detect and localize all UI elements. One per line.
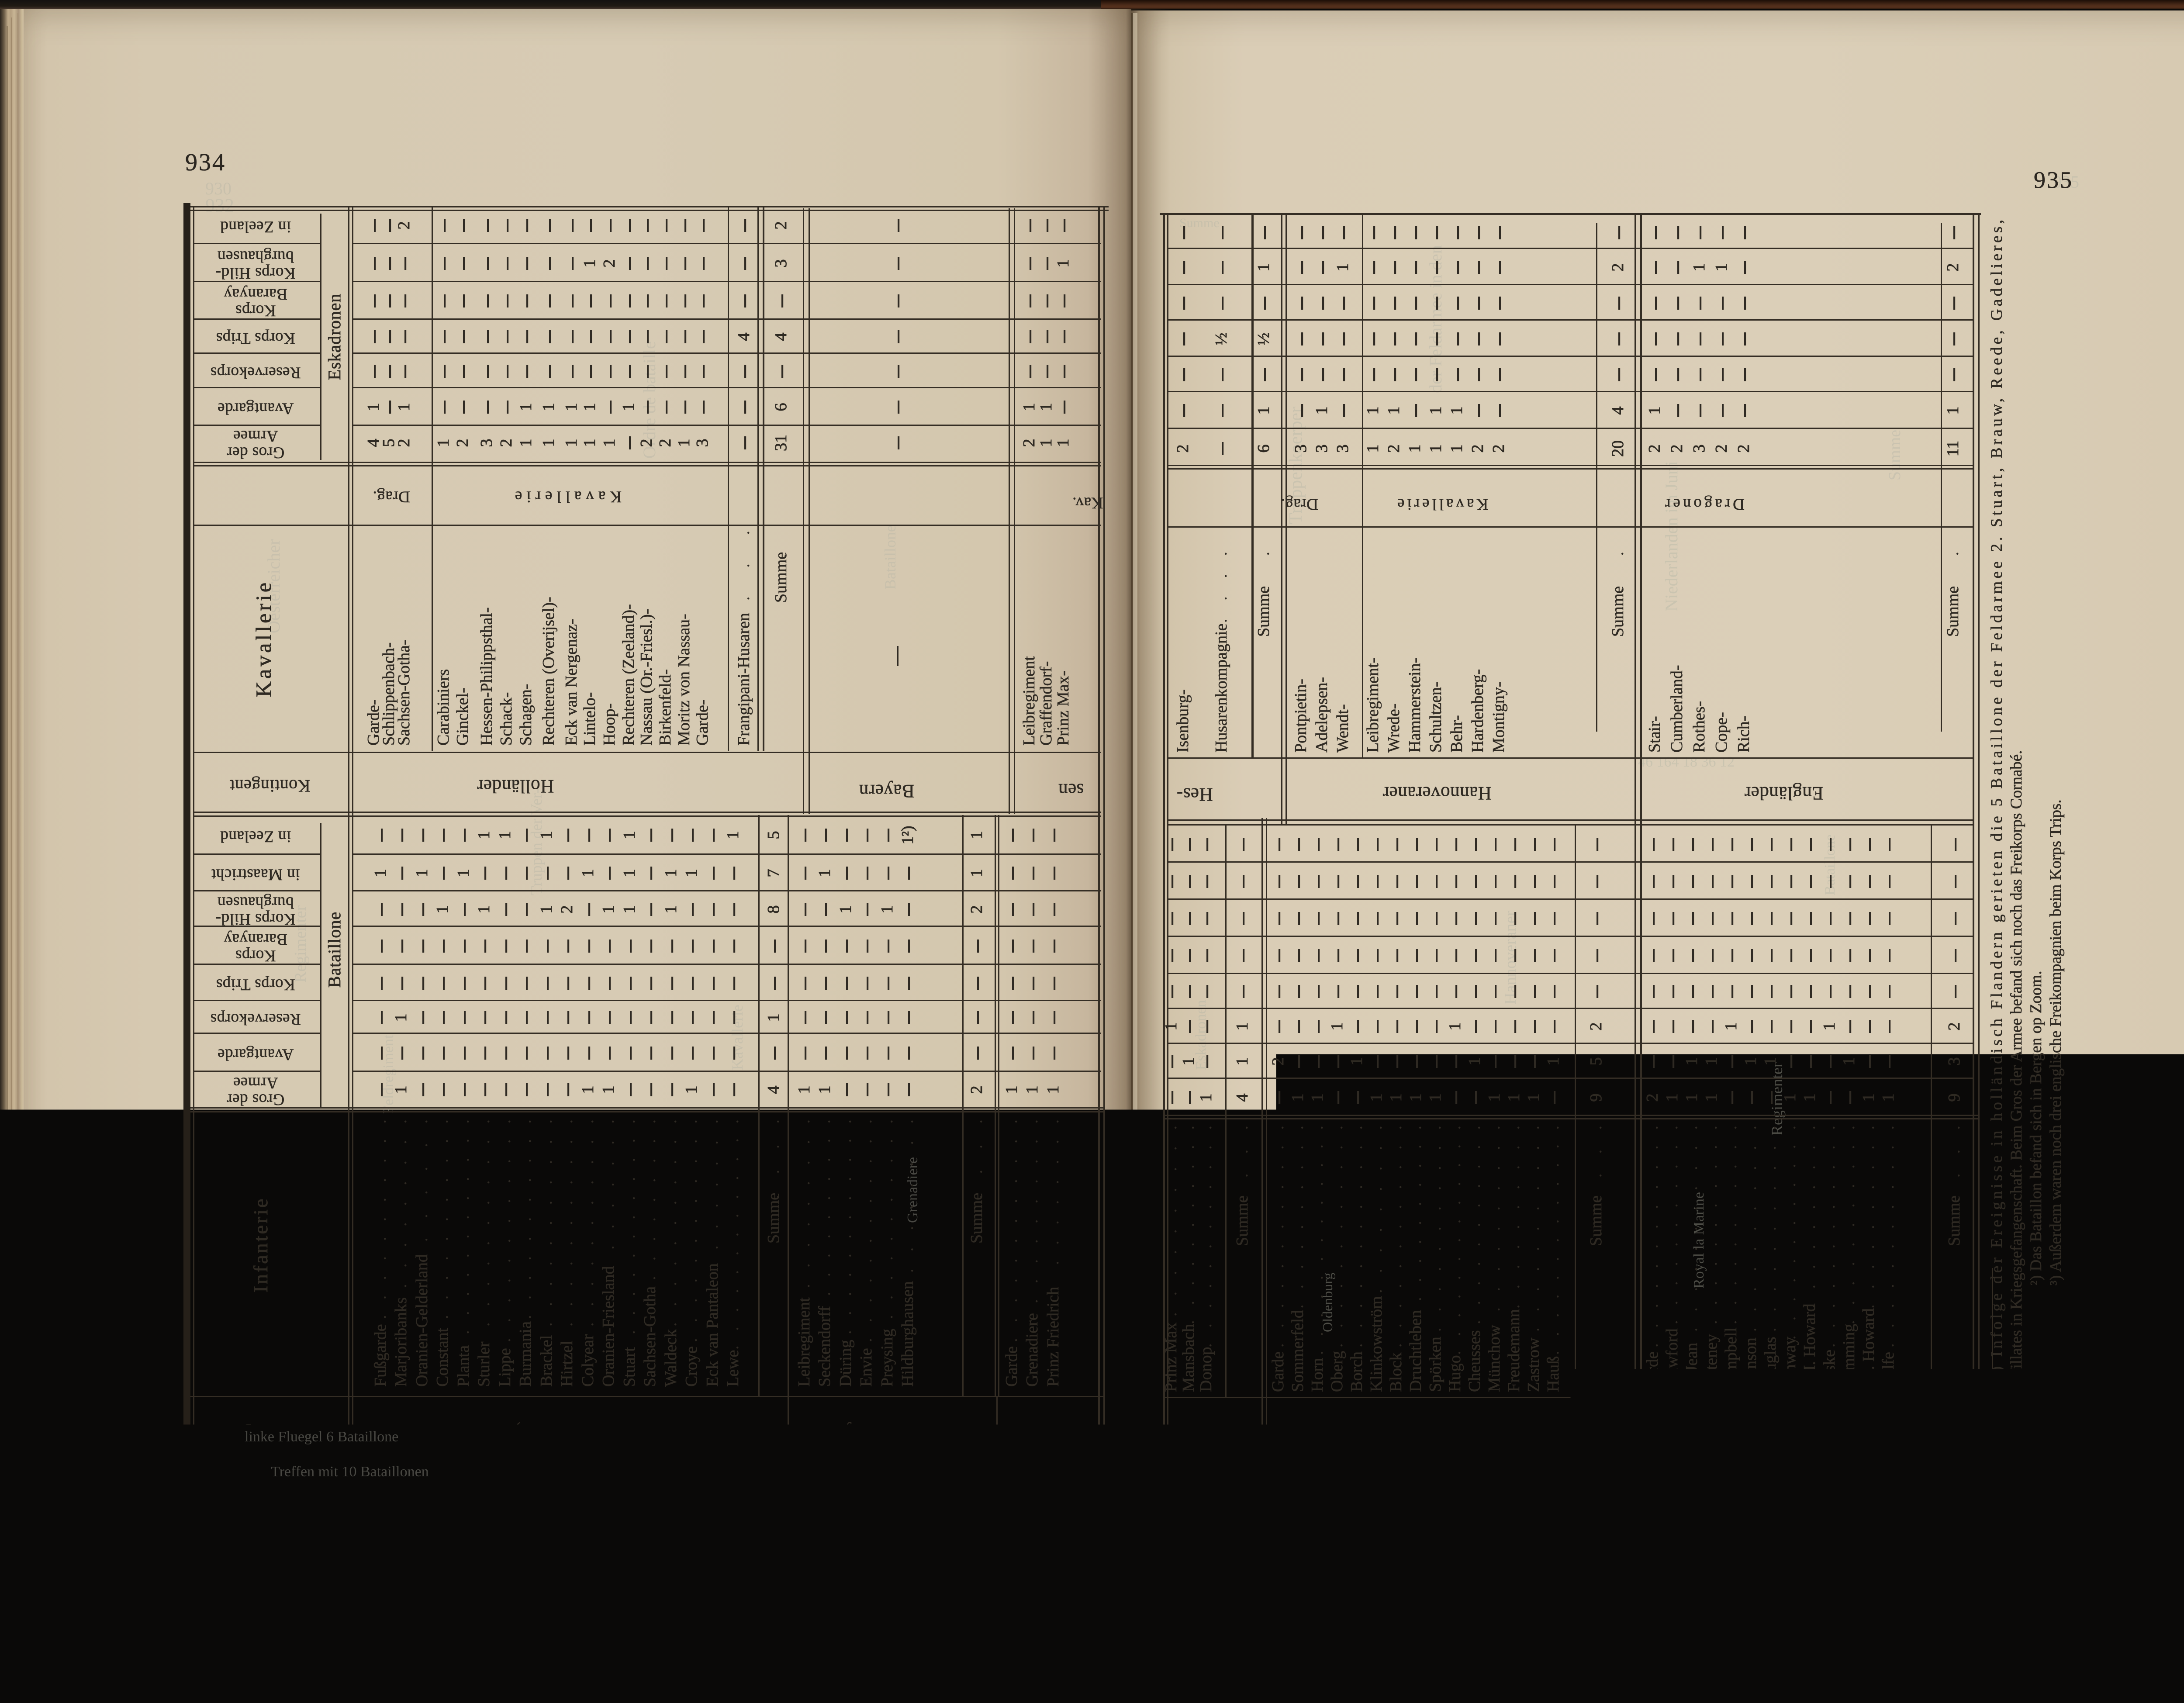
svg-text:Summe: Summe (1944, 586, 1962, 637)
svg-text:1: 1 (968, 869, 986, 877)
svg-text:Dragoner: Dragoner (1662, 495, 1745, 513)
svg-text:Grenadiere: Grenadiere (905, 1157, 921, 1223)
svg-text:. . . . . . . . . . .: . . . . . . . . . . . (475, 1119, 493, 1326)
svg-text:. . . . . . . . . . . .: . . . . . . . . . . . . (620, 1119, 639, 1334)
svg-text:Schack-: Schack- (497, 692, 515, 746)
svg-text:6: 6 (772, 403, 790, 411)
svg-text:Hes-: Hes- (1176, 784, 1213, 805)
svg-text:2: 2 (558, 905, 576, 914)
svg-text:Carabiniers: Carabiniers (434, 669, 453, 746)
svg-text:. . . . . . . . . . . .: . . . . . . . . . . . . (1002, 1119, 1021, 1342)
svg-text:. . . . . . . . . . .: . . . . . . . . . . . (1179, 1126, 1198, 1324)
svg-text:1: 1 (496, 831, 514, 839)
svg-text:²) Das Bataillon befand sich i: ²) Das Bataillon befand sich in Bergen o… (2027, 971, 2045, 1285)
svg-text:Envie: Envie (857, 1348, 875, 1387)
svg-text:. . . . . . . . . . . . .: . . . . . . . . . . . . . (1544, 1126, 1562, 1355)
svg-text:9: 9 (1587, 1094, 1605, 1102)
svg-text:Holländer: Holländer (477, 776, 554, 796)
svg-text:Crawford: Crawford (1663, 1328, 1681, 1392)
svg-text:2: 2 (1712, 445, 1731, 453)
svg-text:. . . .: . . . . (1233, 1126, 1251, 1202)
svg-text:. . . . . . .: . . . . . . . (599, 1119, 618, 1250)
svg-text:Truppen der Ver-: Truppen der Ver- (528, 788, 545, 895)
svg-text:Garde: Garde (1002, 1346, 1021, 1387)
svg-text:1: 1 (1334, 263, 1352, 272)
svg-text:1: 1 (1308, 1094, 1327, 1102)
svg-text:Fußgarde: Fußgarde (371, 1324, 390, 1387)
svg-text:1: 1 (1387, 1094, 1405, 1102)
svg-text:2: 2 (395, 439, 413, 447)
svg-text:1: 1 (1722, 1022, 1740, 1031)
svg-text:. . . . . .: . . . . . . (413, 1119, 431, 1242)
svg-text:1: 1 (764, 1014, 783, 1022)
svg-text:1: 1 (1054, 439, 1072, 447)
svg-text:Wrede-: Wrede- (1385, 704, 1403, 753)
svg-text:. . . . . . . . .: . . . . . . . . . (1367, 1126, 1386, 1293)
svg-text:1: 1 (1820, 1022, 1838, 1031)
svg-text:2: 2 (453, 439, 472, 447)
svg-text:Korps Trips: Korps Trips (216, 976, 295, 994)
svg-text:Grenadiere: Grenadiere (1023, 1313, 1041, 1387)
svg-text:1: 1 (1254, 407, 1273, 415)
svg-text:9: 9 (1945, 1094, 1963, 1102)
svg-text:. . . . . . . . . . . .: . . . . . . . . . . . . (1820, 1126, 1838, 1347)
svg-text:935: 935 (2034, 167, 2073, 193)
svg-text:1: 1 (1367, 1094, 1386, 1102)
svg-text:Leibregiment: Leibregiment (1020, 656, 1038, 746)
svg-text:. . . . . . . . . .: . . . . . . . . . . (1505, 1126, 1523, 1309)
svg-text:. . . . . . . . . . .: . . . . . . . . . . . (1663, 1126, 1681, 1324)
svg-text:. . . . . . . . . . .: . . . . . . . . . . . (1426, 1126, 1444, 1332)
svg-text:2: 2 (1945, 1022, 1963, 1031)
svg-text:1: 1 (1663, 1094, 1681, 1102)
svg-text:1: 1 (581, 403, 599, 411)
svg-text:1: 1 (619, 403, 638, 411)
svg-text:Stuart: Stuart (620, 1347, 639, 1387)
svg-text:. . . . . . . . . . . .: . . . . . . . . . . . . (1328, 1126, 1346, 1347)
svg-text:Lippe: Lippe (496, 1348, 514, 1387)
svg-text:Bataillone: Bataillone (881, 525, 899, 590)
svg-text:3: 3 (1690, 445, 1708, 453)
svg-text:2: 2 (1269, 1057, 1287, 1066)
svg-text:1: 1 (1944, 407, 1962, 415)
svg-text:Garde: Garde (1269, 1351, 1287, 1392)
svg-text:Sturler: Sturler (475, 1341, 493, 1387)
svg-text:1: 1 (1348, 1057, 1366, 1066)
svg-text:Eck van Nergenaz-: Eck van Nergenaz- (562, 619, 581, 746)
svg-text:. . . . . . . . . . .: . . . . . . . . . . . (1742, 1126, 1760, 1332)
svg-text:1: 1 (1037, 439, 1055, 447)
svg-text:1: 1 (413, 869, 431, 877)
svg-text:1: 1 (968, 831, 986, 839)
svg-text:1: 1 (1742, 1057, 1760, 1066)
svg-text:Drag.: Drag. (373, 488, 410, 506)
svg-text:Korps: Korps (235, 302, 276, 320)
svg-text:2: 2 (968, 905, 986, 914)
svg-text:Montigny-: Montigny- (1489, 681, 1508, 753)
svg-text:1: 1 (1406, 445, 1424, 453)
svg-text:2: 2 (1020, 439, 1038, 447)
svg-text:4: 4 (764, 1086, 783, 1094)
svg-text:Lewe: Lewe (724, 1350, 742, 1387)
svg-text:de Jean: de Jean (1683, 1343, 1701, 1392)
svg-text:Cheusses: Cheusses (1465, 1330, 1484, 1392)
svg-text:Kavallerie: Kavallerie (1395, 495, 1488, 513)
svg-text:1: 1 (1044, 1086, 1062, 1094)
svg-text:Husarenkompagnie: Husarenkompagnie (1212, 624, 1230, 753)
svg-text:1: 1 (1859, 1094, 1878, 1102)
svg-text:Drag.: Drag. (1281, 495, 1318, 513)
svg-text:. . . . . . . . . . . .: . . . . . . . . . . . . (1348, 1126, 1366, 1347)
svg-text:1: 1 (1702, 1057, 1721, 1066)
svg-text:Garde-: Garde- (693, 700, 712, 746)
svg-text:1: 1 (1683, 1094, 1701, 1102)
svg-text:Rechteren (Overijsel)-: Rechteren (Overijsel)- (539, 597, 558, 746)
svg-text:Engländer ³): Engländer ³) (1745, 1425, 1842, 1446)
svg-text:Rich-: Rich- (1735, 716, 1753, 753)
svg-text:Kavallerie: Kavallerie (251, 580, 276, 697)
svg-text:2: 2 (1645, 445, 1664, 453)
svg-text:Niederlanden im Juni: Niederlanden im Juni (1662, 461, 1681, 611)
svg-text:Hannoveraner: Hannoveraner (1382, 783, 1492, 803)
svg-text:1: 1 (662, 905, 680, 914)
svg-text:Bataillone: Bataillone (325, 912, 344, 988)
svg-text:2: 2 (1643, 1094, 1662, 1102)
svg-text:2: 2 (1469, 445, 1487, 453)
svg-text:. . . . . . . . . . .: . . . . . . . . . . . (537, 1119, 556, 1326)
svg-text:Korps Hild-: Korps Hild- (215, 264, 295, 282)
svg-text:Sachsen-Gotha: Sachsen-Gotha (641, 1286, 659, 1387)
svg-text:Freudemann: Freudemann (1505, 1309, 1523, 1392)
svg-text:4: 4 (772, 333, 790, 341)
svg-text:. . . . . . . . . . .: . . . . . . . . . . . (433, 1119, 452, 1319)
svg-text:. . . .: . . . . (968, 1119, 986, 1199)
svg-text:. . . . . . . . . .: . . . . . . . . . . (1800, 1126, 1819, 1309)
svg-text:1: 1 (1702, 1094, 1721, 1102)
svg-text:. . . . . . . . .: . . . . . . . . . (392, 1119, 410, 1288)
svg-text:2: 2 (1668, 445, 1686, 453)
svg-text:1: 1 (537, 831, 556, 839)
svg-text:1: 1 (392, 1086, 410, 1094)
svg-text:1: 1 (1289, 1094, 1307, 1102)
svg-text:. . . . . . . . . . .: . . . . . . . . . . . (1465, 1126, 1484, 1324)
svg-text:1: 1 (1179, 1057, 1198, 1066)
svg-text:1: 1 (539, 403, 558, 411)
svg-text:1: 1 (454, 869, 473, 877)
svg-text:. . . . . . . . . .: . . . . . . . . . . (816, 1119, 834, 1296)
svg-text:Baranyay: Baranyay (224, 285, 287, 303)
svg-text:Kavallerie: Kavallerie (511, 488, 622, 506)
svg-text:¹) Infolge der Ereignisse in h: ¹) Infolge der Ereignisse in holländisch… (1988, 220, 2006, 1379)
svg-text:. . . . . . . . . . . .: . . . . . . . . . . . . (1269, 1126, 1287, 1347)
svg-text:Reservekorps: Reservekorps (210, 1010, 301, 1028)
svg-text:Prinz Friedrich: Prinz Friedrich (1044, 1287, 1062, 1387)
svg-text:Gros der: Gros der (227, 444, 284, 462)
svg-text:Kontingent: Kontingent (230, 776, 311, 796)
svg-text:Pontpietin-: Pontpietin- (1292, 679, 1310, 753)
svg-text:Summe: Summe (764, 1193, 783, 1244)
svg-text:4: 4 (735, 333, 753, 341)
svg-text:Hessen-Philippsthal-: Hessen-Philippsthal- (477, 607, 496, 746)
svg-text:1: 1 (1485, 1094, 1503, 1102)
svg-text:Mansbach: Mansbach (1179, 1324, 1198, 1392)
svg-text:1: 1 (1002, 1086, 1021, 1094)
svg-text:Armee: Armee (233, 427, 278, 445)
svg-text:1: 1 (724, 831, 742, 839)
svg-text:1: 1 (682, 1086, 701, 1094)
svg-text:Avantgarde: Avantgarde (218, 1046, 294, 1064)
svg-text:. . . . . . . . . . . .: . . . . . . . . . . . . (1643, 1126, 1662, 1347)
svg-text:1: 1 (1544, 1057, 1562, 1066)
svg-text:3: 3 (1334, 445, 1352, 453)
svg-text:burghausen: burghausen (218, 248, 294, 266)
svg-text:1: 1 (1037, 403, 1055, 411)
svg-text:2: 2 (1944, 263, 1962, 272)
svg-text:. . . . . . .: . . . . . . . (703, 1119, 722, 1250)
svg-text:1: 1 (392, 1014, 410, 1022)
svg-text:3: 3 (477, 439, 496, 447)
svg-text:. . . . . . . . . . . .: . . . . . . . . . . . . (1387, 1126, 1405, 1347)
svg-text:1: 1 (1465, 1057, 1484, 1066)
svg-text:Reservekorps: Reservekorps (210, 364, 301, 382)
svg-text:Adelepsen-: Adelepsen- (1313, 677, 1331, 753)
svg-text:sen: sen (1058, 780, 1084, 800)
svg-text:1: 1 (1364, 445, 1382, 453)
svg-text:Block: Block (1387, 1352, 1405, 1392)
svg-text:1: 1 (1800, 1094, 1819, 1102)
svg-text:Oranien-Gelderland: Oranien-Gelderland (413, 1254, 431, 1387)
svg-text:31: 31 (772, 435, 790, 451)
svg-text:Summe: Summe (1609, 586, 1627, 637)
svg-text:³) Außerdem waren noch drei en: ³) Außerdem waren noch drei englische Fr… (2047, 799, 2065, 1285)
svg-text:1: 1 (1254, 263, 1273, 272)
svg-text:sen: sen (1031, 1422, 1057, 1442)
svg-text:. . . . . . . . . . . . .: . . . . . . . . . . . . . (1446, 1126, 1464, 1355)
svg-text:Leibregiment: Leibregiment (795, 1297, 813, 1387)
svg-text:Hardenberg-: Hardenberg- (1469, 669, 1487, 753)
svg-text:2: 2 (600, 259, 619, 268)
svg-text:Rechteren (Zeeland)-: Rechteren (Zeeland)- (619, 604, 638, 746)
svg-text:7: 7 (764, 869, 783, 877)
svg-text:1: 1 (517, 403, 535, 411)
svg-text:Zastrow: Zastrow (1524, 1337, 1543, 1392)
svg-text:Pulteney: Pulteney (1702, 1334, 1721, 1392)
svg-text:1: 1 (1712, 263, 1731, 272)
svg-text:2: 2 (1609, 263, 1627, 272)
svg-text:1: 1 (1683, 1057, 1701, 1066)
svg-text:. . . . . . . . . . . .: . . . . . . . . . . . . (496, 1119, 514, 1342)
svg-text:5: 5 (764, 831, 783, 839)
svg-text:1: 1 (475, 831, 493, 839)
svg-text:1: 1 (581, 259, 599, 268)
svg-text:1: 1 (682, 869, 701, 877)
svg-text:2: 2 (1174, 445, 1192, 453)
svg-text:Schagen-: Schagen- (517, 684, 535, 746)
svg-text:in Maastricht: in Maastricht (211, 866, 300, 884)
svg-text:Oranien-Friesland: Oranien-Friesland (599, 1266, 618, 1387)
svg-text:1: 1 (579, 869, 597, 877)
svg-text:Moritz von Nassau-: Moritz von Nassau- (675, 614, 693, 746)
svg-text:.: . (772, 554, 790, 559)
svg-text:2: 2 (1489, 445, 1508, 453)
svg-text:burghausen: burghausen (218, 894, 294, 912)
svg-text:Korps Trips: Korps Trips (216, 329, 295, 347)
svg-text:Hildburghausen: Hildburghausen (898, 1281, 917, 1387)
svg-text:1: 1 (1448, 407, 1466, 415)
svg-text:. . . . . . . . . . . .: . . . . . . . . . . . . (1781, 1126, 1799, 1340)
svg-text:1: 1 (675, 439, 693, 447)
svg-text:1: 1 (395, 403, 413, 411)
svg-text:Summe: Summe (1254, 586, 1273, 637)
svg-text:. . . . . . . . . .: . . . . . . . . . . (1406, 1126, 1425, 1301)
svg-text:. . . .: . . . . (1587, 1126, 1605, 1202)
svg-text:Waldeck: Waldeck (662, 1329, 680, 1387)
svg-text:2: 2 (395, 221, 413, 230)
svg-text:3: 3 (1292, 445, 1310, 453)
svg-text:. . . . . . . . . . .: . . . . . . . . . . . (1840, 1126, 1858, 1324)
svg-text:. . . . . . . . . . . .: . . . . . . . . . . . . (1879, 1126, 1897, 1347)
svg-text:1: 1 (579, 1086, 597, 1094)
svg-text:6: 6 (1254, 445, 1273, 453)
svg-text:Kavallerie: Kavallerie (729, 1005, 746, 1070)
svg-text:Baranyay: Baranyay (224, 930, 287, 948)
svg-text:5: 5 (1587, 1057, 1605, 1066)
svg-text:Schultzen-: Schultzen- (1427, 681, 1445, 753)
svg-text:Burmania: Burmania (516, 1321, 535, 1387)
svg-text:. . . . . . . . . . . . .: . . . . . . . . . . . . . (724, 1119, 742, 1350)
svg-text:Brackel: Brackel (537, 1335, 556, 1387)
svg-text:1: 1 (1690, 263, 1708, 272)
svg-text:20: 20 (1609, 440, 1627, 457)
svg-text:4: 4 (1233, 1094, 1251, 1102)
svg-text:Wolfe: Wolfe (1879, 1352, 1897, 1392)
svg-text:. . . . . . . . . .: . . . . . . . . . . (1289, 1126, 1307, 1309)
svg-text:. . . . . . . . .: . . . . . . . . . (795, 1119, 813, 1288)
svg-text:der Feldarmee in den: der Feldarmee in den (1426, 245, 1445, 393)
svg-text:1: 1 (816, 1086, 834, 1094)
svg-text:Armee: Armee (233, 1074, 278, 1092)
svg-text:. . . . . . . . . .: . . . . . . . . . . (1859, 1126, 1878, 1309)
svg-text:2: 2 (968, 1086, 986, 1094)
svg-text:. . . . . . . . . . . .: . . . . . . . . . . . . (1197, 1126, 1215, 1347)
svg-text:1: 1 (537, 905, 556, 914)
svg-text:Hoop-: Hoop- (600, 703, 619, 746)
svg-text:Conway: Conway (1781, 1337, 1799, 1392)
svg-text:Planta: Planta (454, 1345, 473, 1387)
svg-text:2: 2 (497, 439, 515, 447)
svg-text:. . . . . . . . . . .: . . . . . . . . . . . (662, 1119, 680, 1326)
svg-text:1: 1 (1879, 1094, 1897, 1102)
svg-text:. . . . . . . . . . . .: . . . . . . . . . . . . (454, 1119, 473, 1334)
svg-text:1: 1 (600, 439, 619, 447)
svg-text:3: 3 (1313, 445, 1331, 453)
svg-text:3: 3 (1945, 1057, 1963, 1066)
svg-text:1: 1 (1781, 1094, 1799, 1102)
svg-text:. . . . . . . . .: . . . . . . . . . (641, 1119, 659, 1280)
svg-text:Stair-: Stair- (1645, 716, 1664, 753)
svg-text:1: 1 (1446, 1022, 1464, 1031)
svg-text:Rothes-: Rothes- (1690, 701, 1708, 753)
svg-text:1: 1 (1448, 445, 1466, 453)
svg-text:Avantgarde: Avantgarde (218, 400, 294, 418)
svg-text:. . . . . . . . . . .: . . . . . . . . . . . (1722, 1126, 1740, 1324)
svg-text:Constant: Constant (433, 1327, 452, 1387)
svg-text:1: 1 (1426, 1094, 1444, 1102)
svg-text:1: 1 (620, 905, 639, 914)
svg-text:Infanterie: Infanterie (249, 1197, 272, 1293)
svg-text:½: ½ (1254, 333, 1273, 345)
svg-text:1: 1 (371, 869, 390, 877)
svg-text:Flemming: Flemming (1840, 1324, 1858, 1392)
svg-text:46 164 18 36 12: 46 164 18 36 12 (1638, 754, 1735, 770)
svg-text:11: 11 (1944, 441, 1962, 457)
svg-text:. . . . . . . .: . . . . . . . . (1044, 1119, 1062, 1265)
svg-text:Summe: Summe (1945, 1195, 1963, 1246)
svg-text:Frangipani-Husaren: Frangipani-Husaren (735, 613, 753, 746)
svg-text:Behr-: Behr- (1448, 715, 1466, 753)
svg-text:Graffendorf-: Graffendorf- (1037, 661, 1055, 746)
svg-text:Prinz Max: Prinz Max (1162, 1323, 1180, 1392)
svg-text:1: 1 (816, 869, 834, 877)
svg-text:. . . . . . . . . . .: . . . . . . . . . . . (579, 1119, 597, 1326)
svg-text:. . . . . . . . . . .: . . . . . . . . . . . (1683, 1126, 1701, 1332)
svg-text:. . . . . . . . . . .: . . . . . . . . . . . (1702, 1126, 1721, 1324)
svg-text:Lintelo-: Lintelo- (581, 692, 599, 746)
svg-text:2: 2 (1735, 445, 1753, 453)
svg-text:1: 1 (1162, 1022, 1180, 1031)
svg-text:Korps: Korps (235, 947, 276, 965)
svg-text:1: 1 (1524, 1094, 1543, 1102)
svg-text:in Zeeland: in Zeeland (220, 828, 291, 846)
svg-text:1: 1 (1427, 407, 1445, 415)
svg-text:. . . . . . . . . . . .: . . . . . . . . . . . . (857, 1119, 875, 1342)
svg-text:1: 1 (836, 905, 855, 914)
svg-text:Borch: Borch (1348, 1351, 1366, 1392)
svg-text:2: 2 (1385, 445, 1403, 453)
svg-text:Druchtleben: Druchtleben (1406, 1310, 1425, 1392)
svg-text:1: 1 (1328, 1022, 1346, 1031)
svg-text:Kontingent: Kontingent (222, 1424, 303, 1444)
svg-text:4: 4 (1609, 407, 1627, 415)
svg-text:Hauß: Hauß (1544, 1356, 1562, 1392)
svg-text:Douglas: Douglas (1761, 1337, 1780, 1392)
svg-text:1: 1 (433, 905, 452, 914)
svg-text:Colyear: Colyear (579, 1334, 597, 1387)
svg-text:1: 1 (1505, 1094, 1523, 1102)
svg-text:Sommerfeld: Sommerfeld (1289, 1310, 1307, 1392)
svg-text:1: 1 (599, 905, 618, 914)
svg-text:Preysing: Preysing (878, 1329, 896, 1387)
svg-text:3: 3 (693, 439, 712, 447)
svg-text:. . . . . . . . . . .: . . . . . . . . . . . (1524, 1126, 1543, 1332)
svg-text:Engländer: Engländer (1744, 783, 1823, 803)
svg-text:GL. Howard: GL. Howard (1859, 1308, 1878, 1392)
svg-text:Klinkowström: Klinkowström (1367, 1296, 1386, 1392)
svg-text:1: 1 (1385, 407, 1403, 415)
svg-text:Bayern: Bayern (859, 781, 914, 801)
svg-text:Cumberland-: Cumberland- (1668, 665, 1686, 753)
svg-text:Hirtzel: Hirtzel (558, 1340, 576, 1387)
svg-text:1: 1 (1427, 445, 1445, 453)
svg-text:Eskadronen: Eskadronen (325, 294, 344, 380)
svg-text:Münchow: Münchow (1485, 1324, 1503, 1392)
svg-text:Croye: Croye (682, 1346, 701, 1387)
svg-text:. . . . . . . . . . . .: . . . . . . . . . . . . (836, 1119, 855, 1334)
svg-text:Seckendorff: Seckendorff (816, 1306, 834, 1387)
svg-text:Feldregiment: Feldregiment (380, 1034, 397, 1114)
svg-text:1: 1 (581, 439, 599, 447)
svg-text:Campbell: Campbell (1722, 1327, 1740, 1392)
